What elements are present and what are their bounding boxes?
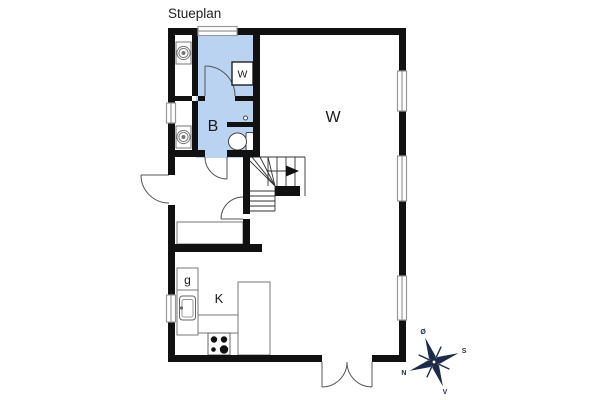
- kitchen-label: K: [215, 291, 224, 306]
- washing-machine-icon: [176, 42, 191, 64]
- wall-bottom-left: [168, 355, 322, 362]
- wall-bath-living: [253, 28, 260, 157]
- sink-icon: [180, 296, 196, 320]
- wall-utility-upper: [192, 35, 198, 96]
- wall-bath-south-a: [175, 150, 205, 157]
- staircase: [250, 157, 305, 211]
- window-right-2-icon: [398, 156, 407, 201]
- bathroom-label: B: [208, 118, 219, 135]
- toilet-icon: [229, 133, 254, 151]
- page-title: Stueplan: [168, 6, 221, 21]
- bath-cabinet-label: W: [238, 69, 248, 81]
- compass-south-label: S: [462, 348, 467, 355]
- wall-utility-lower: [192, 101, 198, 150]
- hall-closet: [177, 222, 243, 244]
- stove-icon: [208, 333, 230, 355]
- entrance-door: [141, 175, 169, 203]
- compass-east-label: Ø: [420, 329, 426, 336]
- window-left-lower-icon: [167, 295, 176, 322]
- bath-cabinet: W: [232, 62, 253, 85]
- kitchen-counter-bottom: [198, 315, 238, 333]
- dryer-icon: [176, 126, 191, 148]
- shower-knob-icon: [244, 116, 248, 120]
- stair-up-arrow-icon: [286, 166, 299, 177]
- window-right-3-icon: [398, 276, 407, 320]
- compass-north-label: N: [401, 370, 406, 377]
- wall-bath-divider-c: [235, 96, 253, 101]
- wall-kitchen: [175, 244, 262, 252]
- compass-west-label: V: [443, 389, 448, 396]
- wall-shower-screen: [227, 122, 253, 127]
- wall-bath-divider-a: [175, 96, 192, 101]
- window-top-icon: [198, 27, 237, 36]
- wall-stairs: [243, 157, 250, 214]
- floor-plan-page: Stueplan: [0, 0, 600, 400]
- living-room-label: W: [325, 109, 341, 126]
- kitchen-peninsula: [238, 282, 270, 355]
- wall-left-upper: [168, 28, 175, 175]
- wall-closet-stub: [243, 219, 250, 244]
- window-right-1-icon: [398, 71, 407, 111]
- terrace-double-door: [322, 362, 372, 387]
- floor-plan-drawing: Stueplan: [0, 0, 600, 400]
- window-left-upper-icon: [167, 103, 176, 123]
- wall-bath-divider-b: [198, 96, 205, 101]
- wall-bottom-right: [372, 355, 406, 362]
- understairs-door: [221, 197, 243, 219]
- bathroom-hall-door: [205, 157, 227, 179]
- pantry-cell-label: g: [184, 273, 191, 287]
- wall-left-lower: [168, 205, 175, 362]
